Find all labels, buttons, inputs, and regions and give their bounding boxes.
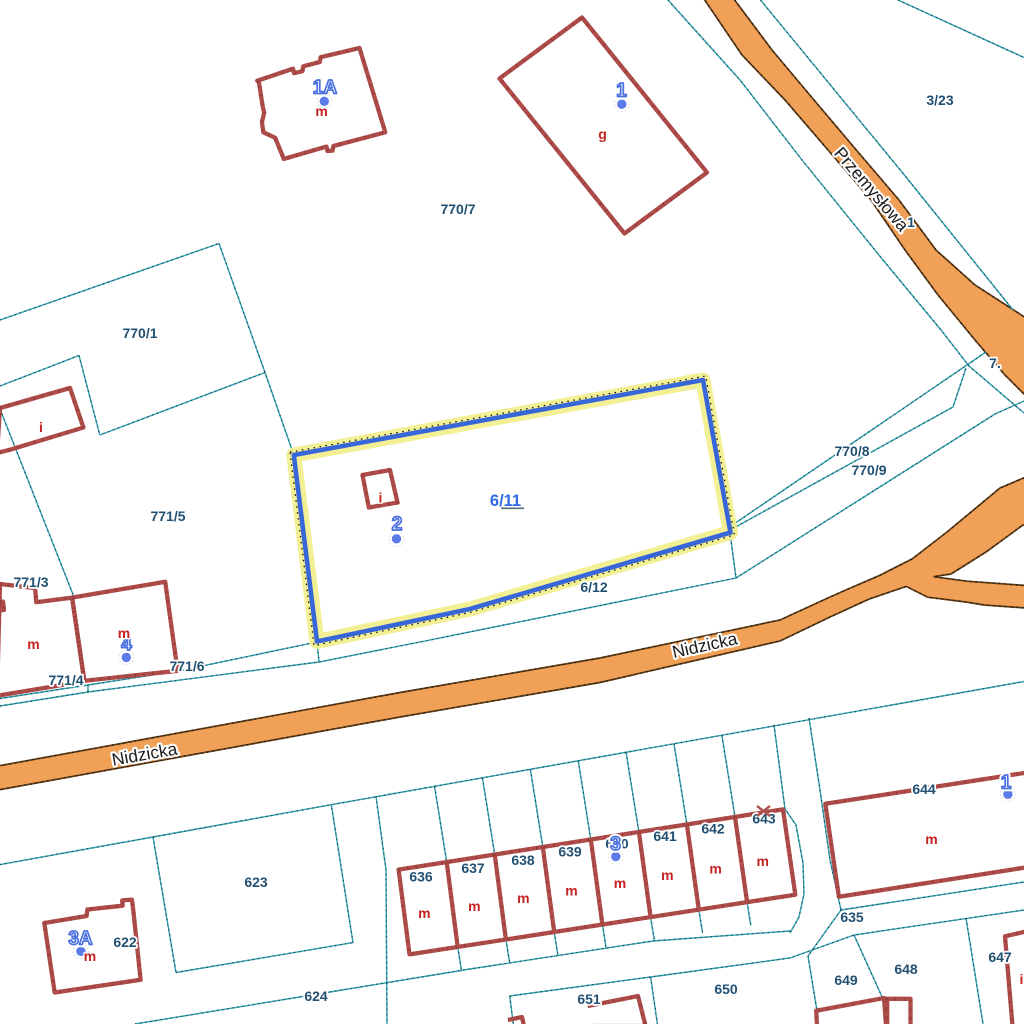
- svg-text:m: m: [756, 853, 768, 869]
- svg-text:651: 651: [577, 991, 601, 1007]
- svg-text:m: m: [468, 898, 480, 914]
- svg-text:m: m: [614, 875, 626, 891]
- svg-text:648: 648: [894, 961, 918, 977]
- svg-text:770/7: 770/7: [440, 201, 475, 217]
- svg-text:770/1: 770/1: [122, 325, 157, 341]
- svg-text:644: 644: [912, 781, 936, 797]
- svg-text:623: 623: [244, 874, 268, 890]
- svg-text:635: 635: [840, 909, 864, 925]
- svg-text:1: 1: [616, 81, 627, 102]
- svg-text:m: m: [517, 890, 529, 906]
- svg-text:771/3: 771/3: [13, 574, 48, 590]
- svg-text:m: m: [565, 883, 577, 899]
- svg-text:770/9: 770/9: [851, 462, 886, 478]
- svg-text:m: m: [315, 103, 327, 119]
- svg-text:2: 2: [392, 514, 403, 535]
- svg-text:647: 647: [988, 949, 1012, 965]
- svg-text:636: 636: [409, 868, 433, 884]
- svg-text:771/6: 771/6: [169, 658, 204, 674]
- svg-text:m: m: [418, 905, 430, 921]
- svg-text:m: m: [925, 831, 937, 847]
- svg-text:637: 637: [461, 860, 485, 876]
- svg-text:g: g: [598, 126, 607, 142]
- svg-text:638: 638: [511, 852, 535, 868]
- svg-text:3/23: 3/23: [926, 92, 953, 108]
- svg-text:6/12: 6/12: [580, 579, 607, 595]
- svg-text:649: 649: [834, 972, 858, 988]
- svg-text:1A: 1A: [313, 78, 338, 99]
- svg-text:7.: 7.: [989, 355, 1001, 371]
- svg-text:m: m: [661, 867, 673, 883]
- svg-text:m: m: [27, 636, 39, 652]
- svg-text:i: i: [379, 490, 383, 506]
- svg-text:m: m: [709, 861, 721, 877]
- svg-text:641: 641: [653, 828, 677, 844]
- svg-text:3A: 3A: [68, 929, 93, 950]
- svg-text:642: 642: [701, 820, 725, 836]
- svg-text:i: i: [39, 419, 43, 435]
- svg-text:m: m: [118, 625, 130, 641]
- svg-text:1: 1: [1001, 773, 1012, 794]
- svg-text:3: 3: [610, 834, 621, 855]
- svg-text:622: 622: [113, 934, 137, 950]
- svg-text:i: i: [1020, 971, 1024, 987]
- svg-text:770/8: 770/8: [834, 443, 869, 459]
- svg-text:m: m: [84, 948, 96, 964]
- svg-text:771/5: 771/5: [150, 508, 185, 524]
- svg-text:624: 624: [304, 988, 328, 1004]
- svg-text:639: 639: [558, 843, 582, 859]
- svg-text:650: 650: [714, 981, 738, 997]
- svg-text:6/11: 6/11: [490, 492, 521, 510]
- svg-text:771/4: 771/4: [48, 672, 83, 688]
